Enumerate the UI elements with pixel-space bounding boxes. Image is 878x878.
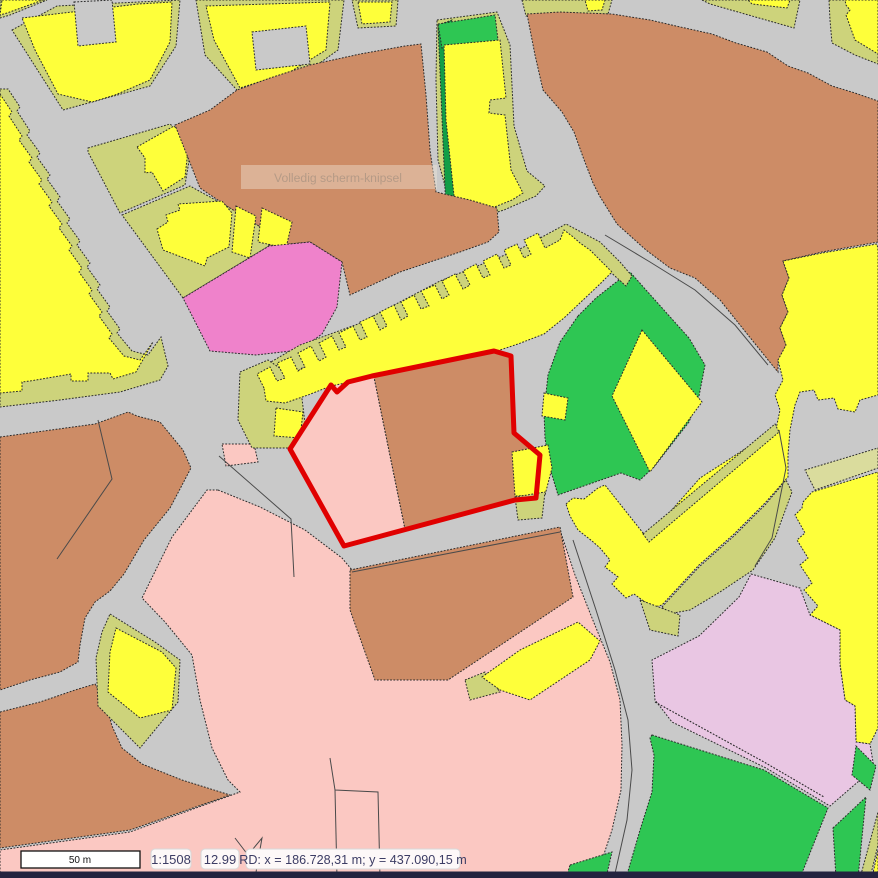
svg-text:1:1508: 1:1508: [151, 852, 191, 867]
svg-text:RD: x = 186.728,31 m; y = 437.: RD: x = 186.728,31 m; y = 437.090,15 m: [239, 853, 467, 867]
svg-text:Volledig scherm-knipsel: Volledig scherm-knipsel: [274, 171, 402, 185]
svg-text:12.99: 12.99: [204, 852, 237, 867]
svg-text:50 m: 50 m: [69, 855, 91, 866]
